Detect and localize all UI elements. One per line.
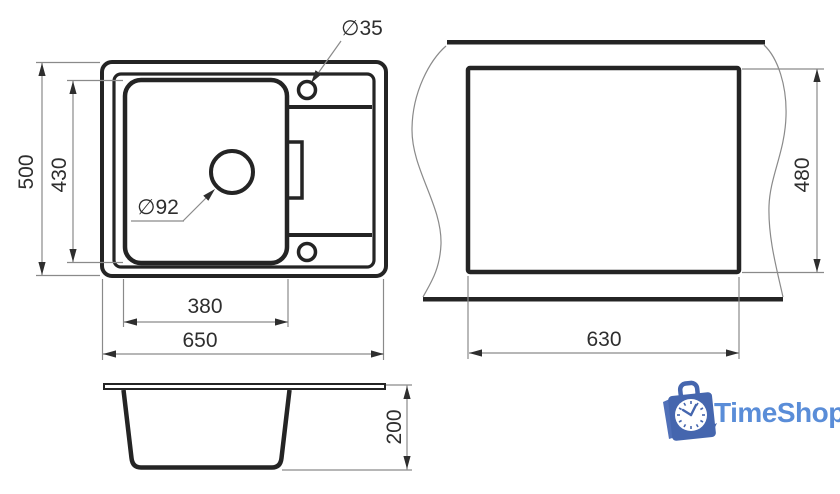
cutout-rectangle bbox=[468, 68, 739, 272]
sink-inner-edge bbox=[114, 74, 374, 267]
sink-rim-profile bbox=[104, 384, 385, 389]
sink-bowl bbox=[125, 80, 287, 263]
faucet-hole-bottom bbox=[299, 244, 316, 261]
dim-label-bowl-width: 380 bbox=[175, 295, 235, 319]
counter-back-edge bbox=[447, 40, 765, 45]
logo-wordmark: TimeShop bbox=[714, 399, 840, 427]
sink-outer-edge bbox=[102, 62, 386, 276]
faucet-hole-top bbox=[299, 82, 316, 99]
drain-hole bbox=[211, 151, 253, 193]
bowl-profile bbox=[124, 390, 290, 468]
counter-front-edge bbox=[423, 297, 783, 302]
technical-drawing-page: 500 430 380 650 ∅92 ∅35 480 630 200 Time… bbox=[0, 0, 840, 494]
shopping-bag-clock-icon bbox=[663, 381, 717, 441]
dim-label-drain-diameter: ∅92 bbox=[128, 196, 188, 220]
dim-label-cutout-width: 630 bbox=[574, 328, 634, 352]
sink-side-view bbox=[104, 384, 412, 470]
sink-top-view bbox=[102, 41, 386, 276]
dim-label-cutout-depth: 480 bbox=[791, 145, 815, 205]
dim-label-bowl-depth: 430 bbox=[48, 145, 72, 205]
dim-label-bowl-height: 200 bbox=[383, 397, 407, 457]
counter-break-line-left bbox=[412, 46, 446, 297]
dim-label-faucet-hole-diameter: ∅35 bbox=[332, 17, 392, 41]
counter-break-line-right bbox=[764, 45, 786, 297]
dim-label-overall-width: 650 bbox=[170, 329, 230, 353]
countertop-cutout-view bbox=[412, 40, 824, 359]
dim-label-overall-depth: 500 bbox=[15, 142, 39, 202]
